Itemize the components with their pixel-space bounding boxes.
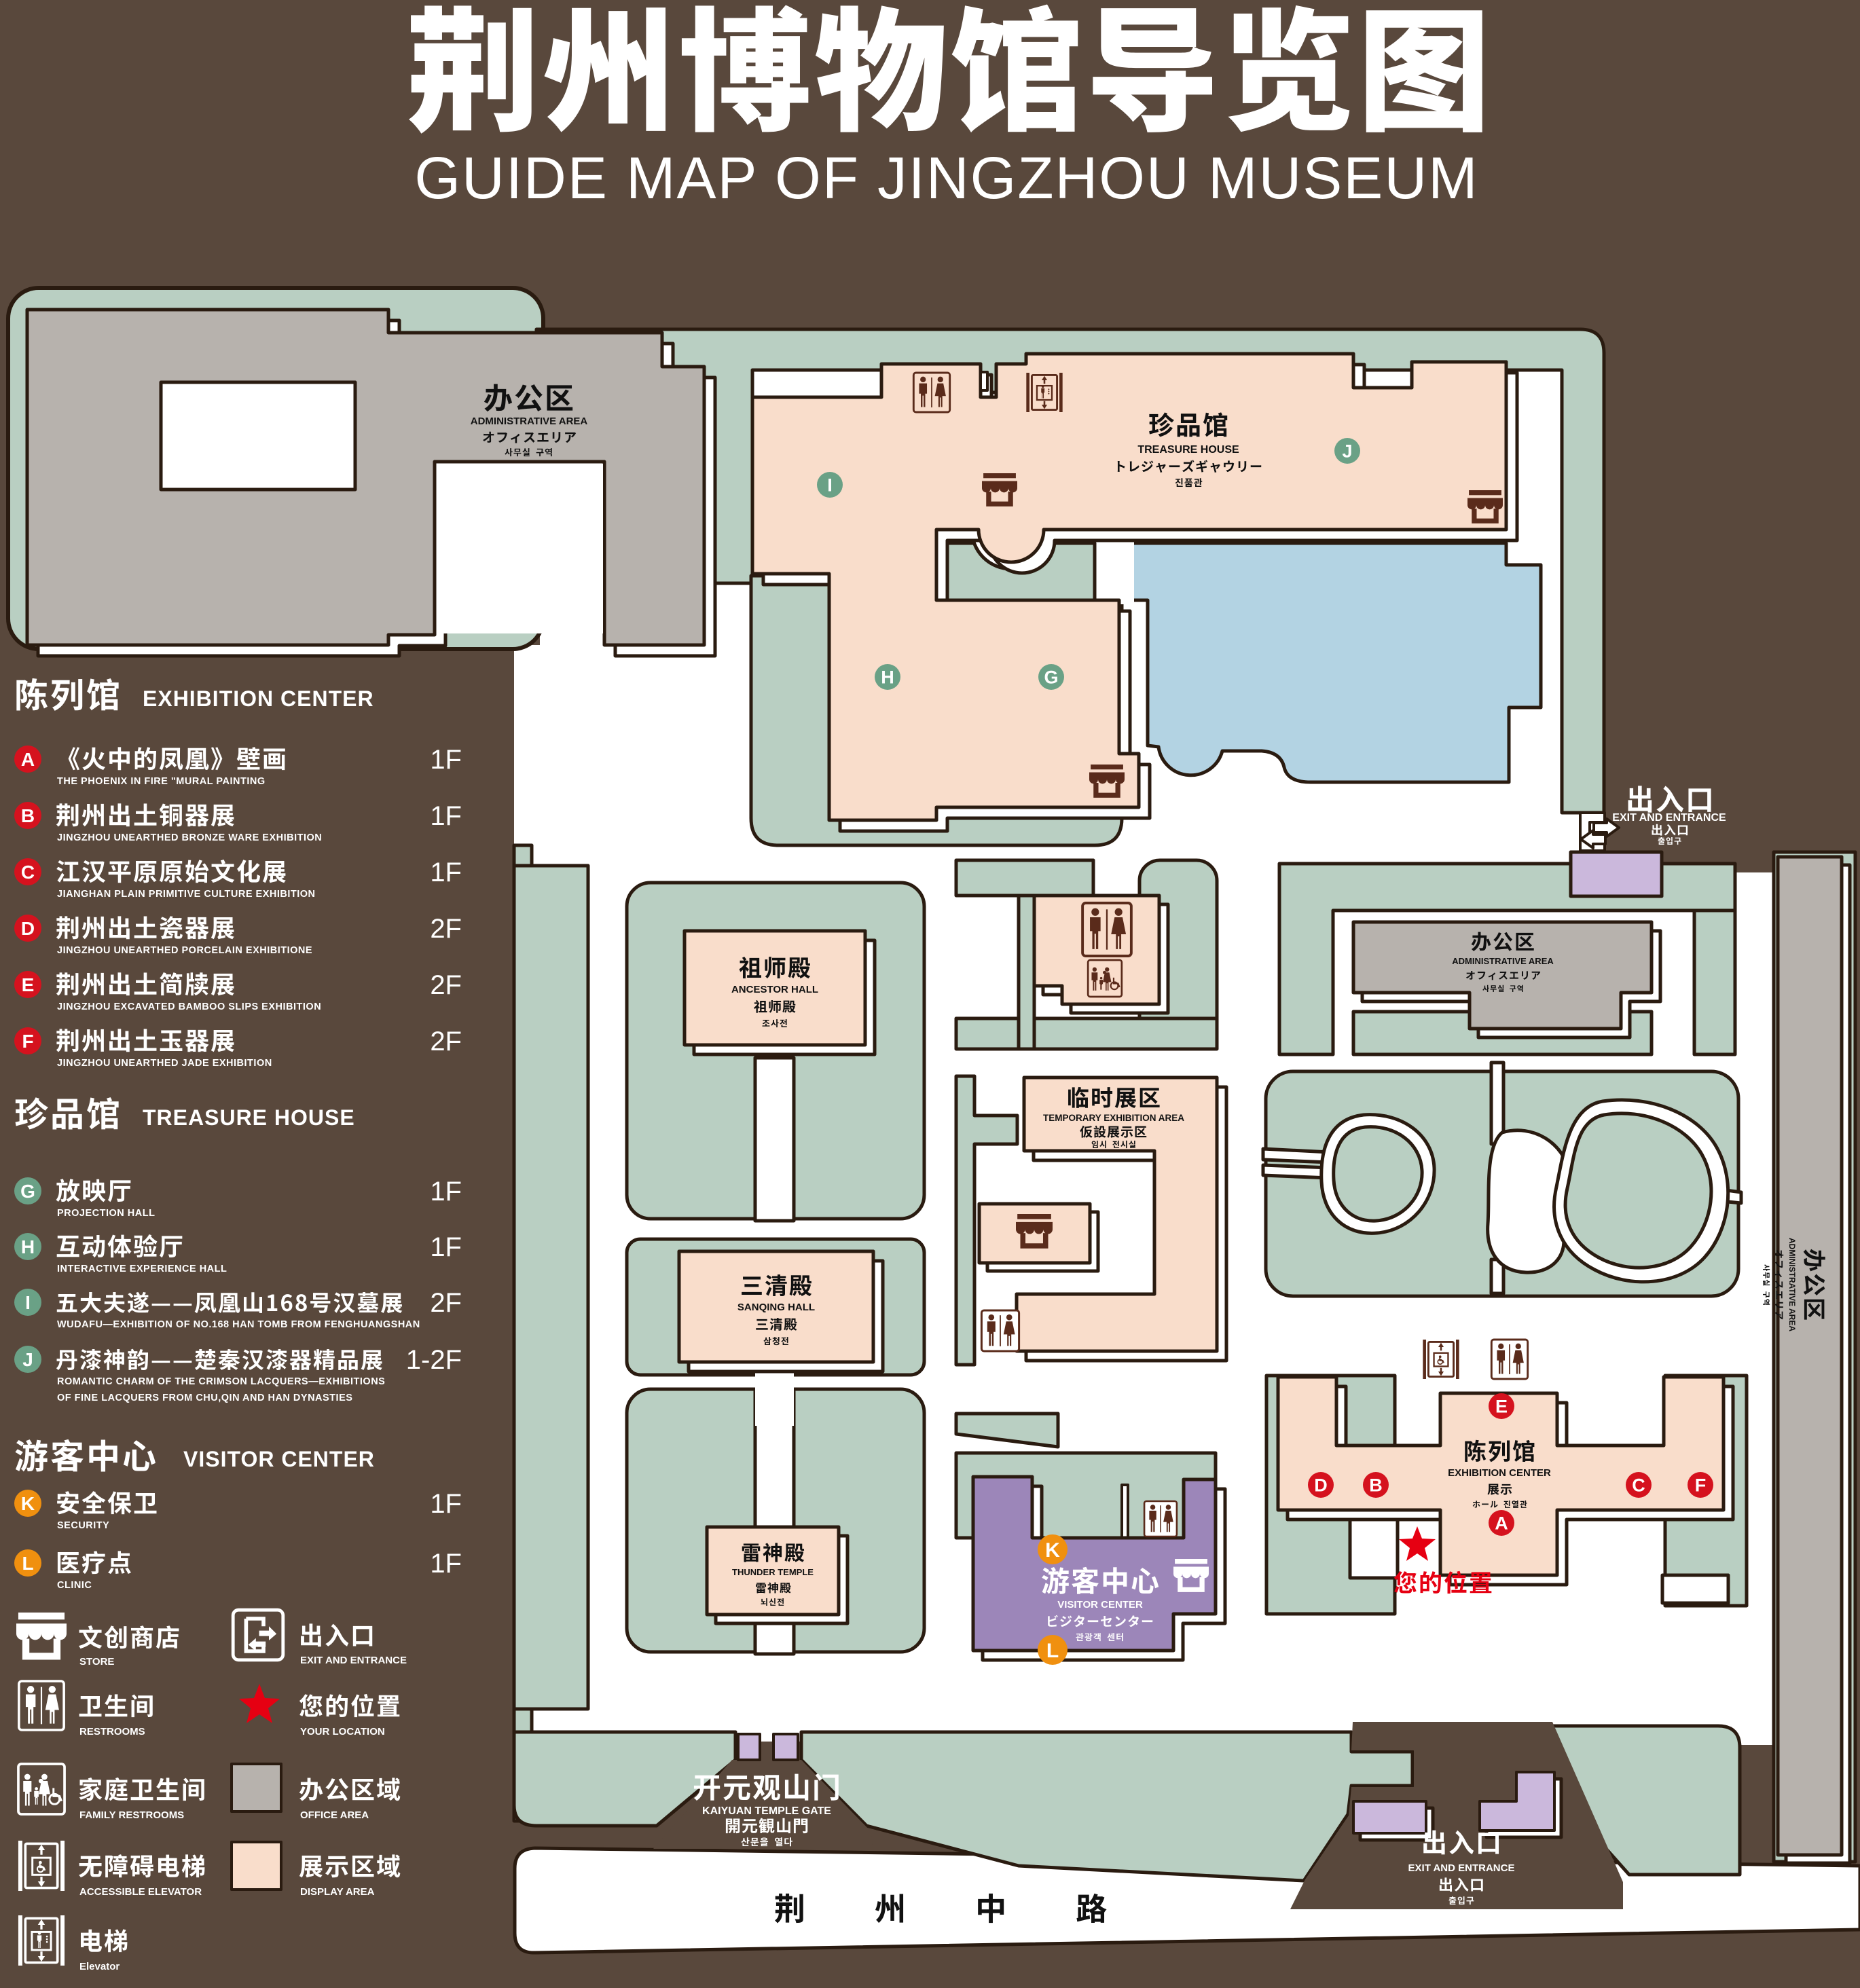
svg-text:EXIT AND ENTRANCE: EXIT AND ENTRANCE	[300, 1655, 407, 1666]
svg-text:INTERACTIVE EXPERIENCE HALL: INTERACTIVE EXPERIENCE HALL	[57, 1264, 227, 1274]
svg-text:I: I	[827, 475, 833, 496]
svg-text:SECURITY: SECURITY	[57, 1520, 109, 1531]
svg-text:Elevator: Elevator	[79, 1961, 120, 1972]
svg-text:A: A	[1495, 1513, 1508, 1534]
svg-text:ADMINISTRATIVE AREA: ADMINISTRATIVE AREA	[471, 416, 588, 427]
svg-text:JIANGHAN PLAIN PRIMITIVE CULTU: JIANGHAN PLAIN PRIMITIVE CULTURE EXHIBIT…	[57, 889, 316, 900]
svg-text:G: G	[20, 1181, 35, 1202]
svg-text:H: H	[881, 667, 894, 688]
svg-text:D: D	[1314, 1475, 1328, 1496]
svg-text:THE PHOENIX IN FIRE "MURAL PAI: THE PHOENIX IN FIRE "MURAL PAINTING	[57, 776, 266, 787]
svg-text:EXHIBITION CENTER: EXHIBITION CENTER	[1448, 1467, 1551, 1479]
svg-text:2F: 2F	[430, 1288, 462, 1318]
svg-text:CLINIC: CLINIC	[57, 1580, 92, 1591]
svg-text:ADMINISTRATIVE AREA: ADMINISTRATIVE AREA	[1787, 1238, 1797, 1331]
svg-text:2F: 2F	[430, 914, 462, 944]
svg-text:1-2F: 1-2F	[406, 1345, 462, 1375]
svg-text:K: K	[1045, 1539, 1060, 1562]
svg-text:C: C	[1632, 1475, 1645, 1496]
svg-text:1F: 1F	[430, 1177, 462, 1207]
svg-text:1F: 1F	[430, 1549, 462, 1579]
svg-text:D: D	[21, 918, 35, 939]
svg-text:TREASURE HOUSE: TREASURE HOUSE	[143, 1105, 355, 1130]
svg-text:WUDAFU—EXHIBITION OF NO.168 HA: WUDAFU—EXHIBITION OF NO.168 HAN TOMB FRO…	[57, 1319, 420, 1330]
svg-text:GUIDE MAP OF JINGZHOU MUSEUM: GUIDE MAP OF JINGZHOU MUSEUM	[414, 145, 1478, 211]
svg-text:OFFICE AREA: OFFICE AREA	[300, 1809, 369, 1821]
svg-text:G: G	[1044, 667, 1058, 688]
svg-text:J: J	[22, 1349, 33, 1370]
svg-text:JINGZHOU UNEARTHED JADE EXHIBI: JINGZHOU UNEARTHED JADE EXHIBITION	[57, 1058, 272, 1069]
svg-text:JINGZHOU EXCAVATED BAMBOO SLIP: JINGZHOU EXCAVATED BAMBOO SLIPS EXHIBITI…	[57, 1001, 321, 1012]
svg-text:JINGZHOU UNEARTHED BRONZE WARE: JINGZHOU UNEARTHED BRONZE WARE EXHIBITIO…	[57, 832, 322, 843]
svg-text:1F: 1F	[430, 858, 462, 887]
svg-text:OF FINE LACQUERS FROM CHU,QIN: OF FINE LACQUERS FROM CHU,QIN AND HAN DY…	[57, 1393, 352, 1403]
svg-text:J: J	[1342, 441, 1352, 462]
svg-text:DISPLAY AREA: DISPLAY AREA	[300, 1886, 375, 1898]
svg-text:KAIYUAN TEMPLE GATE: KAIYUAN TEMPLE GATE	[702, 1805, 831, 1817]
svg-text:F: F	[22, 1031, 33, 1052]
svg-text:ADMINISTRATIVE AREA: ADMINISTRATIVE AREA	[1452, 956, 1554, 966]
svg-text:E: E	[22, 974, 35, 995]
svg-text:RESTROOMS: RESTROOMS	[79, 1726, 145, 1737]
svg-text:THUNDER TEMPLE: THUNDER TEMPLE	[732, 1567, 814, 1577]
svg-text:TREASURE HOUSE: TREASURE HOUSE	[1137, 444, 1239, 456]
svg-text:1F: 1F	[430, 801, 462, 831]
svg-text:1F: 1F	[430, 745, 462, 775]
svg-text:VISITOR CENTER: VISITOR CENTER	[1057, 1599, 1143, 1610]
svg-text:L: L	[1046, 1640, 1059, 1662]
svg-text:ROMANTIC CHARM OF THE CRIMSON: ROMANTIC CHARM OF THE CRIMSON LACQUERS—E…	[57, 1376, 385, 1387]
svg-text:1F: 1F	[430, 1232, 462, 1262]
svg-text:STORE: STORE	[79, 1656, 114, 1668]
svg-text:C: C	[21, 862, 35, 883]
svg-text:SANQING HALL: SANQING HALL	[737, 1302, 815, 1313]
svg-text:1F: 1F	[430, 1489, 462, 1519]
svg-text:EXHIBITION CENTER: EXHIBITION CENTER	[143, 686, 374, 711]
svg-text:B: B	[1369, 1475, 1383, 1496]
svg-text:JINGZHOU UNEARTHED PORCELAIN E: JINGZHOU UNEARTHED PORCELAIN EXHIBITIONE	[57, 945, 312, 956]
svg-text:H: H	[21, 1236, 35, 1257]
svg-text:TEMPORARY EXHIBITION AREA: TEMPORARY EXHIBITION AREA	[1043, 1113, 1184, 1123]
svg-text:B: B	[21, 805, 35, 826]
svg-text:K: K	[21, 1493, 35, 1514]
svg-text:2F: 2F	[430, 1027, 462, 1056]
svg-text:L: L	[22, 1553, 33, 1574]
svg-text:2F: 2F	[430, 970, 462, 1000]
svg-text:FAMILY RESTROOMS: FAMILY RESTROOMS	[79, 1809, 184, 1821]
svg-text:A: A	[21, 749, 35, 770]
svg-text:EXIT AND ENTRANCE: EXIT AND ENTRANCE	[1408, 1862, 1515, 1874]
svg-text:VISITOR CENTER: VISITOR CENTER	[183, 1447, 375, 1471]
svg-text:F: F	[1695, 1475, 1707, 1496]
svg-text:ANCESTOR HALL: ANCESTOR HALL	[731, 984, 818, 995]
svg-text:I: I	[25, 1292, 31, 1313]
svg-text:YOUR LOCATION: YOUR LOCATION	[300, 1726, 385, 1737]
svg-text:E: E	[1495, 1397, 1508, 1417]
svg-text:ACCESSIBLE ELEVATOR: ACCESSIBLE ELEVATOR	[79, 1886, 202, 1898]
svg-text:PROJECTION HALL: PROJECTION HALL	[57, 1208, 155, 1219]
svg-text:EXIT AND ENTRANCE: EXIT AND ENTRANCE	[1612, 812, 1726, 824]
